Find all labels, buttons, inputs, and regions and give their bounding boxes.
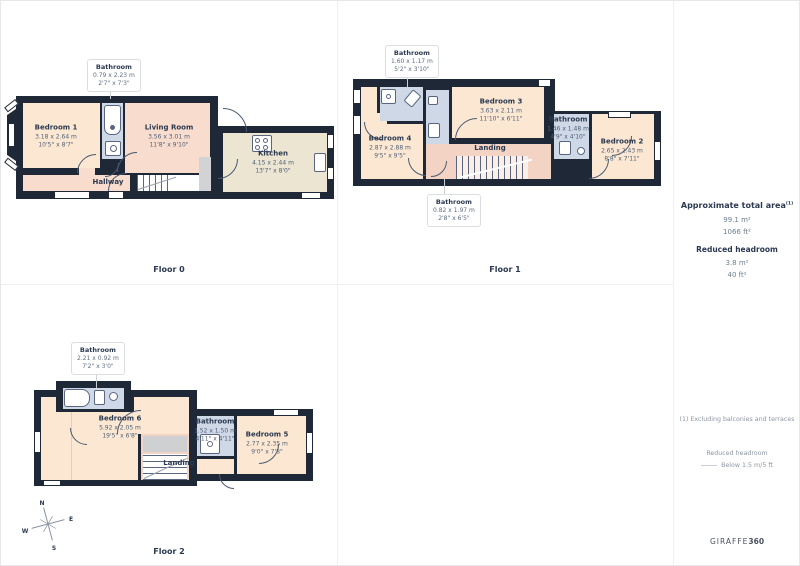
- sink-bowl: [109, 392, 118, 401]
- toilet: [428, 123, 440, 138]
- toilet: [559, 141, 571, 155]
- window: [34, 431, 41, 453]
- window: [273, 409, 299, 416]
- total-area-ft2: 1066 ft²: [673, 227, 800, 239]
- reduced-headroom-line: [71, 412, 72, 480]
- callout-bathroom: Bathroom 2.21 x 0.92 m 7'2" x 3'0": [71, 342, 125, 375]
- label-bedroom-4: Bedroom 4 2.87 x 2.88 m 9'5" x 9'5": [369, 135, 412, 162]
- wall: [554, 159, 592, 162]
- total-area-m2: 99.1 m²: [673, 215, 800, 227]
- sink: [428, 96, 438, 105]
- entry-door-gap: [108, 191, 124, 199]
- landing-block: [143, 436, 187, 452]
- window: [327, 134, 334, 149]
- toilet: [94, 390, 105, 405]
- callout-pointer: [110, 91, 111, 99]
- bathtub: [104, 105, 121, 135]
- window: [54, 191, 90, 199]
- giraffe360-bold: 360: [748, 537, 764, 546]
- bathtub-drain: [110, 125, 115, 130]
- window: [306, 432, 313, 454]
- legend-row: Below 1.5 m/5 ft: [673, 461, 800, 471]
- window: [538, 79, 551, 87]
- legend-line-swatch: [701, 465, 717, 466]
- callout-bathroom-bottom: Bathroom 0.82 x 1.97 m 2'8" x 6'5": [427, 194, 481, 227]
- label-bedroom-3: Bedroom 3 3.63 x 2.11 m 11'10" x 6'11": [480, 98, 523, 125]
- footnote-marker: (1): [786, 201, 793, 206]
- floorplan-page: Bedroom 1 3.18 x 2.64 m 10'5" x 8'7" Liv…: [0, 0, 800, 566]
- room-bedroom-6: [41, 397, 56, 412]
- callout-pointer: [444, 179, 445, 194]
- corridor: [197, 459, 234, 474]
- giraffe360-text: GIRAFFE: [710, 537, 748, 546]
- room-bedroom-6: [134, 397, 189, 412]
- compass-east: E: [69, 516, 73, 523]
- kitchen-sink: [314, 153, 326, 172]
- chimney-block: [199, 157, 211, 191]
- label-bathroom-mid: Bathroom 1.46 x 1.48 m 4'9" x 4'10": [547, 116, 589, 143]
- label-hallway: Hallway: [93, 178, 124, 188]
- floor2-plan: Bedroom 6 5.92 x 2.05 m 19'5" x 6'8" Bed…: [1, 284, 337, 566]
- compass-north: N: [39, 500, 44, 507]
- window: [301, 192, 321, 199]
- legend-item-label: Below 1.5 m/5 ft: [721, 462, 773, 469]
- sink-bowl: [577, 147, 585, 155]
- total-area-heading: Approximate total area(1): [673, 201, 800, 210]
- label-bedroom-2: Bedroom 2 2.65 x 2.43 m 8'8" x 7'11": [601, 138, 644, 165]
- giraffe360-mark: GIRAFFE360: [673, 537, 800, 546]
- hob-burner: [255, 138, 260, 143]
- reduced-headroom-heading: Reduced headroom: [673, 245, 800, 254]
- sidebar: PROPERTY FOUNDATIONS GROUP Approximate t…: [673, 1, 800, 566]
- reduced-headroom-m2: 3.8 m²: [673, 258, 800, 270]
- wall: [387, 121, 423, 124]
- reduced-headroom-ft2: 40 ft²: [673, 270, 800, 282]
- label-bedroom-1: Bedroom 1 3.18 x 2.64 m 10'5" x 8'7": [35, 124, 78, 151]
- floor1-label: Floor 1: [489, 265, 521, 274]
- legend-title: Reduced headroom: [673, 449, 800, 459]
- callout-bathroom: Bathroom 0.79 x 2.23 m 2'7" x 7'3": [87, 59, 141, 92]
- sink-bowl: [110, 145, 117, 152]
- compass-south: S: [52, 545, 56, 552]
- wall: [377, 87, 380, 113]
- label-living-room: Living Room 3.56 x 3.01 m 11'8" x 9'10": [145, 124, 194, 151]
- label-bathroom-mid: Bathroom 1.52 x 1.50 m 4'11" x 4'11": [194, 418, 236, 445]
- hob-burner: [263, 138, 268, 143]
- callout-bathroom-top: Bathroom 1.60 x 1.17 m 5'2" x 3'10": [385, 45, 439, 78]
- window: [8, 123, 15, 147]
- label-landing: Landing: [474, 144, 506, 154]
- window: [353, 115, 361, 135]
- area-footnote: (1) Excluding balconies and terraces: [673, 415, 800, 425]
- floor2-label: Floor 2: [153, 547, 185, 556]
- floor0-label: Floor 0: [153, 265, 185, 274]
- label-bedroom-5: Bedroom 5 2.77 x 2.35 m 9'0" x 7'8": [246, 431, 289, 458]
- label-bedroom-6: Bedroom 6 5.92 x 2.05 m 19'5" x 6'8": [99, 415, 142, 442]
- window: [353, 89, 361, 104]
- floor0-plan: Bedroom 1 3.18 x 2.64 m 10'5" x 8'7" Liv…: [1, 1, 337, 284]
- label-kitchen: Kitchen 4.15 x 2.44 m 13'7" x 8'0": [252, 150, 294, 177]
- label-landing: Landing: [163, 459, 195, 469]
- window: [608, 111, 631, 118]
- shower-drain: [386, 94, 391, 99]
- compass-icon: N E S W: [19, 495, 77, 553]
- window: [654, 141, 661, 161]
- compass-west: W: [22, 528, 29, 535]
- window: [327, 167, 334, 180]
- floor1-plan: Bedroom 4 2.87 x 2.88 m 9'5" x 9'5" Bedr…: [337, 1, 673, 284]
- bathtub: [64, 389, 90, 407]
- window: [43, 480, 61, 486]
